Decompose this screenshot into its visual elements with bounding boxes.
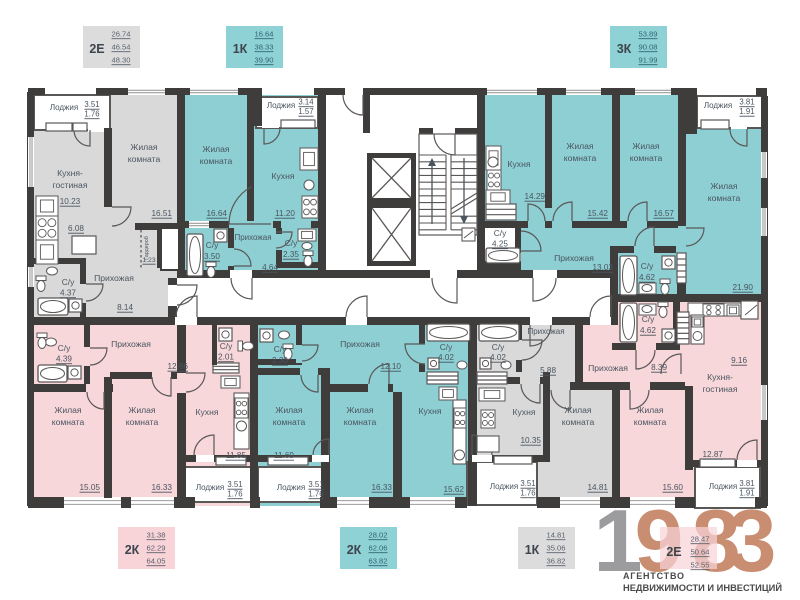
svg-text:5.88: 5.88 [540, 366, 556, 375]
svg-text:11.20: 11.20 [275, 209, 295, 218]
svg-text:16.33: 16.33 [372, 483, 393, 492]
svg-text:12.10: 12.10 [381, 362, 402, 371]
svg-text:С/у: С/у [494, 228, 507, 238]
svg-text:Лоджия: Лоджия [490, 482, 518, 491]
svg-text:3.50: 3.50 [204, 252, 220, 261]
svg-text:91.99: 91.99 [638, 56, 657, 65]
svg-text:С/у: С/у [274, 344, 287, 354]
svg-text:3: 3 [728, 491, 777, 590]
svg-text:Жилая: Жилая [632, 141, 660, 151]
svg-text:3.51: 3.51 [520, 479, 535, 488]
svg-text:15.62: 15.62 [444, 485, 465, 494]
svg-text:11.69: 11.69 [274, 451, 294, 460]
svg-text:Жилая: Жилая [275, 405, 303, 415]
svg-text:1.23: 1.23 [142, 257, 155, 264]
svg-text:Жилая: Жилая [566, 141, 594, 151]
svg-text:35.06: 35.06 [546, 544, 565, 553]
svg-text:12.66: 12.66 [168, 362, 189, 371]
svg-text:Прихожая: Прихожая [554, 253, 594, 263]
svg-text:комната: комната [630, 153, 663, 163]
svg-text:Кухня-: Кухня- [707, 372, 733, 382]
svg-text:НЕДВИЖИМОСТИ И ИНВЕСТИЦИЙ: НЕДВИЖИМОСТИ И ИНВЕСТИЦИЙ [623, 582, 782, 593]
svg-text:31.38: 31.38 [146, 531, 165, 540]
svg-text:16.51: 16.51 [152, 209, 173, 218]
svg-text:С/у: С/у [62, 277, 75, 287]
svg-text:11.85: 11.85 [226, 451, 246, 460]
svg-text:1.76: 1.76 [308, 490, 323, 499]
svg-text:Кухня: Кухня [419, 406, 442, 416]
svg-text:комната: комната [564, 153, 597, 163]
svg-text:28.47: 28.47 [690, 535, 709, 544]
svg-text:Жилая: Жилая [636, 405, 664, 415]
svg-text:12.87: 12.87 [703, 450, 724, 459]
svg-text:3.81: 3.81 [739, 479, 754, 488]
svg-text:62.06: 62.06 [368, 544, 387, 553]
svg-text:38.33: 38.33 [254, 43, 273, 52]
svg-text:8.39: 8.39 [651, 363, 667, 372]
svg-text:АГЕНТСТВО: АГЕНТСТВО [623, 571, 685, 581]
svg-text:2Е: 2Е [89, 42, 104, 56]
svg-text:комната: комната [128, 154, 161, 164]
svg-text:16.64: 16.64 [254, 30, 273, 39]
svg-text:1.91: 1.91 [739, 107, 754, 116]
svg-text:Прихожая: Прихожая [588, 363, 628, 373]
svg-text:4.02: 4.02 [438, 353, 454, 362]
svg-text:39.90: 39.90 [254, 56, 273, 65]
svg-text:1.76: 1.76 [84, 110, 99, 119]
svg-text:комната: комната [126, 417, 159, 427]
svg-text:64.05: 64.05 [146, 557, 165, 566]
svg-text:Жилая: Жилая [564, 405, 592, 415]
svg-text:4.02: 4.02 [490, 353, 506, 362]
svg-text:2.30: 2.30 [272, 356, 288, 365]
svg-text:21.90: 21.90 [733, 283, 754, 292]
svg-text:комната: комната [273, 417, 306, 427]
svg-text:46.54: 46.54 [111, 43, 130, 52]
svg-text:комната: комната [562, 417, 595, 427]
svg-text:15.05: 15.05 [80, 483, 101, 492]
svg-text:С/у: С/у [285, 238, 298, 248]
svg-text:комната: комната [634, 417, 667, 427]
svg-text:6.08: 6.08 [68, 224, 84, 233]
svg-text:Лоджия: Лоджия [709, 482, 737, 491]
svg-text:3.51: 3.51 [227, 480, 242, 489]
svg-text:Жилая: Жилая [130, 142, 158, 152]
svg-text:комната: комната [344, 417, 377, 427]
svg-text:Лоджия: Лоджия [196, 483, 224, 492]
svg-text:16.33: 16.33 [152, 483, 173, 492]
svg-text:28.02: 28.02 [368, 531, 387, 540]
svg-text:3.51: 3.51 [84, 100, 99, 109]
svg-text:1К: 1К [233, 42, 248, 56]
svg-text:1.76: 1.76 [520, 489, 535, 498]
svg-text:15.42: 15.42 [588, 209, 609, 218]
svg-text:2К: 2К [347, 543, 362, 557]
svg-text:3.14: 3.14 [298, 98, 314, 107]
svg-text:4.39: 4.39 [56, 355, 72, 364]
svg-text:9.16: 9.16 [731, 356, 747, 365]
svg-text:Прихожая: Прихожая [94, 273, 134, 283]
svg-text:3.51: 3.51 [308, 480, 323, 489]
svg-text:Лоджия: Лоджия [277, 483, 305, 492]
svg-text:Кухня: Кухня [196, 407, 219, 417]
svg-text:С/у: С/у [492, 342, 505, 352]
svg-text:52.55: 52.55 [690, 561, 709, 570]
svg-text:3К: 3К [617, 42, 632, 56]
svg-text:Жилая: Жилая [346, 405, 374, 415]
svg-text:50.64: 50.64 [690, 548, 709, 557]
svg-text:3.81: 3.81 [739, 98, 754, 107]
svg-text:10.23: 10.23 [60, 197, 81, 206]
svg-text:Жилая: Жилая [128, 405, 156, 415]
svg-text:4.62: 4.62 [640, 326, 656, 335]
svg-text:4.64: 4.64 [262, 263, 278, 272]
svg-text:2Е: 2Е [666, 545, 681, 559]
svg-text:10.35: 10.35 [521, 436, 542, 445]
svg-text:8.14: 8.14 [117, 303, 133, 312]
svg-text:62.29: 62.29 [146, 544, 165, 553]
svg-text:Кухня-: Кухня- [57, 168, 83, 178]
svg-text:Лоджия: Лоджия [50, 103, 78, 112]
svg-text:Прихожая: Прихожая [111, 339, 151, 349]
svg-text:гостиная: гостиная [703, 384, 738, 394]
svg-text:Кухня: Кухня [508, 159, 531, 169]
svg-text:14.29: 14.29 [525, 192, 546, 201]
svg-text:С/у: С/у [642, 314, 655, 324]
svg-text:С/у: С/у [206, 240, 219, 250]
svg-text:С/у: С/у [641, 261, 654, 271]
svg-text:2.01: 2.01 [218, 353, 234, 362]
svg-text:комната: комната [708, 193, 741, 203]
svg-text:гостиная: гостиная [53, 180, 88, 190]
svg-text:2.35: 2.35 [283, 250, 299, 259]
svg-text:Прихожая: Прихожая [340, 339, 380, 349]
svg-text:14.81: 14.81 [546, 531, 565, 540]
svg-text:26.74: 26.74 [111, 30, 130, 39]
svg-text:4.25: 4.25 [492, 240, 508, 249]
svg-text:1.57: 1.57 [298, 107, 313, 116]
svg-text:Прихожая: Прихожая [527, 327, 564, 336]
svg-text:4.62: 4.62 [639, 273, 655, 282]
svg-text:Кухня: Кухня [513, 407, 536, 417]
svg-text:13.03: 13.03 [593, 263, 614, 272]
svg-text:2К: 2К [125, 543, 140, 557]
svg-text:90.08: 90.08 [638, 43, 657, 52]
svg-text:Прихожая: Прихожая [234, 233, 271, 242]
svg-text:Жилая: Жилая [54, 405, 82, 415]
svg-text:С/у: С/у [440, 342, 453, 352]
svg-text:1.76: 1.76 [227, 490, 242, 499]
svg-text:53.89: 53.89 [638, 30, 657, 39]
svg-text:1К: 1К [525, 543, 540, 557]
svg-text:36.82: 36.82 [546, 557, 565, 566]
svg-text:С/у: С/у [58, 343, 71, 353]
svg-text:Лоджия: Лоджия [704, 101, 732, 110]
svg-text:С/у: С/у [220, 341, 233, 351]
svg-text:Жилая: Жилая [710, 181, 738, 191]
svg-text:16.64: 16.64 [207, 209, 228, 218]
svg-text:Лоджия: Лоджия [267, 101, 295, 110]
svg-text:4.37: 4.37 [60, 289, 76, 298]
svg-text:48.30: 48.30 [111, 56, 130, 65]
svg-text:Кухня: Кухня [272, 171, 295, 181]
svg-text:63.82: 63.82 [368, 557, 387, 566]
svg-text:комната: комната [52, 417, 85, 427]
svg-text:комната: комната [200, 156, 233, 166]
svg-text:Жилая: Жилая [202, 144, 230, 154]
svg-text:16.57: 16.57 [654, 209, 675, 218]
